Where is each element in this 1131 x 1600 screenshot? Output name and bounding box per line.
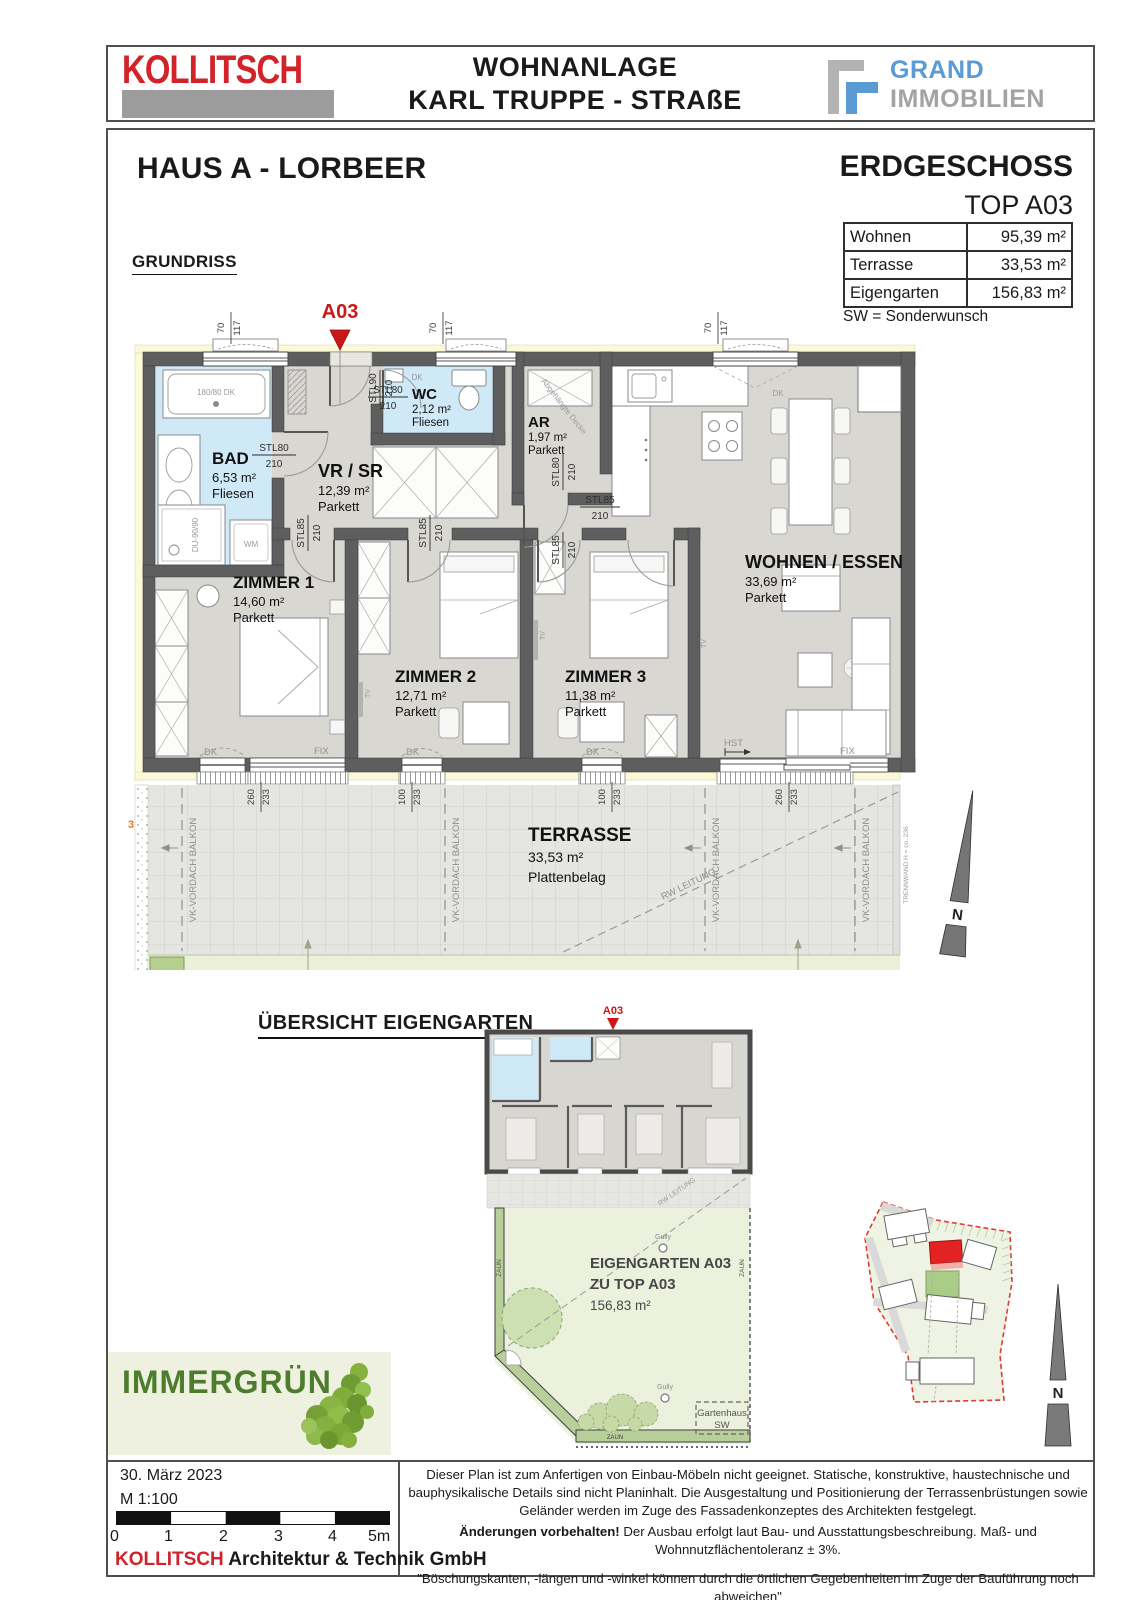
footer-divider: [106, 1460, 1095, 1462]
scale-tick: 5m: [368, 1528, 390, 1546]
bathtub-label: 180/80 DK: [197, 388, 235, 397]
room-floor: Parkett: [395, 704, 437, 719]
immergruen-badge: IMMERGRÜN: [108, 1352, 391, 1455]
dim: 233: [412, 789, 423, 805]
tv-label: TV: [540, 631, 547, 640]
room-name: ZIMMER 1: [233, 573, 314, 592]
fix-label: FIX: [314, 746, 329, 757]
door-size: 210: [380, 401, 397, 412]
highlighted-unit: [929, 1240, 962, 1264]
dim: 117: [232, 320, 243, 335]
project-title-line1: WOHNANLAGE: [340, 51, 810, 84]
door-size: STL80: [551, 457, 562, 487]
scale-tick: 3: [274, 1528, 283, 1546]
project-title-line2: KARL TRUPPE - STRAßE: [340, 84, 810, 117]
lawn-strip: [148, 955, 900, 970]
north-label: N: [951, 906, 964, 924]
scale-tick: 0: [110, 1528, 119, 1546]
tv-mark: [534, 620, 538, 660]
zaun-label: ZAUN: [496, 1259, 503, 1277]
gravel-strip: [135, 785, 148, 970]
room-floor: Parkett: [745, 590, 787, 605]
room-floor: Plattenbelag: [528, 869, 606, 885]
dk-label: DK: [411, 373, 423, 382]
door-size: STL85: [418, 518, 429, 548]
mini-unit-marker-arrow-icon: [607, 1018, 619, 1030]
gully-label: Gully: [655, 1234, 671, 1241]
garden-area: 156,83 m²: [590, 1298, 651, 1313]
hst-label: HST: [724, 738, 743, 749]
grand-icon-blue-shape: [846, 82, 878, 114]
grand-immobilien-icon: [826, 58, 882, 116]
gartenhaus-label2: SW: [714, 1420, 729, 1431]
garden-name-line2: ZU TOP A03: [590, 1276, 676, 1293]
scale-bar: [116, 1511, 390, 1525]
gartenhaus-label1: Gartenhaus: [697, 1408, 747, 1419]
grand-wordmark: GRAND IMMOBILIEN: [890, 56, 1045, 114]
plan-sheet: KOLLITSCH WOHNANLAGE KARL TRUPPE - STRAß…: [0, 0, 1131, 1600]
terrace: VK-VORDACH BALKON VK-VORDACH BALKON VK-V…: [128, 785, 910, 970]
dim: 117: [444, 320, 455, 335]
dim: 70: [428, 323, 439, 334]
tv-mark: [359, 682, 363, 717]
scale-tick: 4: [328, 1528, 337, 1546]
fix-label: FIX: [840, 746, 855, 757]
door-size: STL85: [585, 495, 615, 506]
zaun-label: ZAUN: [607, 1435, 623, 1441]
trennwand-label: TRENNWAND H = co. 236: [903, 826, 910, 904]
dim: 260: [246, 789, 257, 805]
room-name: ZIMMER 3: [565, 667, 646, 686]
entrance-opening: [330, 352, 372, 366]
scale-tick: 2: [219, 1528, 228, 1546]
eigengarten: RW LEITUNG Gully Gully EIGENGARTEN A03 Z…: [495, 1177, 750, 1447]
disclaimer: Dieser Plan ist zum Anfertigen von Einba…: [408, 1466, 1088, 1600]
door-size: 210: [567, 463, 578, 480]
gully-icon: [659, 1244, 667, 1252]
plan-date: 30. März 2023: [120, 1467, 222, 1485]
room-name: ZIMMER 2: [395, 667, 476, 686]
tv-label: TV: [365, 689, 372, 698]
vk-vordach-label: VK-VORDACH BALKON: [861, 818, 872, 923]
dim: 233: [789, 789, 800, 805]
grundriss-heading: GRUNDRISS: [132, 252, 237, 275]
table-row: Terrasse 33,53 m²: [844, 251, 1072, 279]
mini-unit-marker-label: A03: [603, 1005, 623, 1017]
door-size: 210: [567, 541, 578, 558]
dim: 70: [703, 323, 714, 334]
dk-label: DK: [406, 747, 420, 758]
green-bed: [150, 957, 184, 970]
floorplan: VK-VORDACH BALKON VK-VORDACH BALKON VK-V…: [118, 300, 1098, 970]
site-plan: [838, 1150, 1023, 1440]
room-area: 12,39 m²: [318, 483, 370, 498]
dk-label: DK: [772, 389, 784, 398]
zaun-label: ZAUN: [739, 1259, 746, 1277]
dim: 117: [719, 320, 730, 335]
kollitsch-logo-bar: [122, 90, 334, 118]
room-floor: Parkett: [318, 499, 360, 514]
room-area: 2,12 m²: [412, 404, 451, 416]
north-label: N: [1053, 1385, 1064, 1402]
highlighted-garden: [926, 1271, 959, 1297]
shower-label: DU-90/90: [191, 517, 200, 552]
area-label: Terrasse: [844, 251, 967, 279]
door-size: 210: [434, 524, 445, 541]
room-name: WOHNEN / ESSEN: [745, 552, 903, 572]
room-area: 33,53 m²: [528, 849, 584, 865]
disclaimer-bold: Änderungen vorbehalten!: [459, 1524, 619, 1539]
door-size: 210: [266, 459, 283, 470]
dim: 260: [774, 789, 785, 805]
room-name: WC: [412, 386, 437, 403]
washing-machine-label: WM: [244, 540, 259, 549]
house-title: HAUS A - LORBEER: [137, 152, 426, 186]
dim: 70: [216, 323, 227, 334]
unit-title: TOP A03: [964, 190, 1073, 221]
dk-label: DK: [204, 747, 218, 758]
unit-marker-label: A03: [322, 301, 359, 323]
dk-label: DK: [586, 747, 600, 758]
room-name: VR / SR: [318, 461, 383, 481]
north-arrow-icon: N: [940, 789, 986, 957]
room-floor: Parkett: [528, 445, 565, 457]
mini-floorplan: A03: [487, 1005, 750, 1175]
north-arrow-icon: N: [1035, 1278, 1081, 1453]
trennwand-strip: [893, 785, 900, 955]
side-number: 3: [128, 819, 134, 831]
company-brand: KOLLITSCH: [115, 1549, 224, 1570]
grand-immobilien-logo: GRAND IMMOBILIEN: [826, 56, 1086, 116]
gully-label: Gully: [657, 1384, 673, 1391]
disclaimer-paragraph-1: Dieser Plan ist zum Anfertigen von Einba…: [408, 1466, 1088, 1520]
entry-shelf: [288, 370, 306, 414]
area-value: 33,53 m²: [967, 251, 1072, 279]
door-size: STL80: [259, 443, 289, 454]
door-size: STL80: [373, 385, 403, 396]
table-row: Wohnen 95,39 m²: [844, 223, 1072, 251]
area-table: Wohnen 95,39 m² Terrasse 33,53 m² Eigeng…: [843, 222, 1073, 308]
grand-word-bottom: IMMOBILIEN: [890, 85, 1045, 114]
door-size: STL85: [296, 518, 307, 548]
door-size: STL85: [551, 535, 562, 565]
room-floor: Parkett: [565, 704, 607, 719]
stove: [702, 412, 742, 460]
vk-vordach-label: VK-VORDACH BALKON: [451, 818, 462, 923]
room-name: BAD: [212, 449, 249, 468]
dim: 100: [397, 789, 408, 805]
tree: [502, 1288, 562, 1348]
disclaimer-rest: Der Ausbau erfolgt laut Bau- und Ausstat…: [620, 1524, 1037, 1557]
room-name: AR: [528, 414, 550, 431]
room-area: 12,71 m²: [395, 688, 447, 703]
room-floor: Parkett: [233, 610, 275, 625]
door-size: 210: [312, 524, 323, 541]
area-value: 95,39 m²: [967, 223, 1072, 251]
room-floor: Fliesen: [212, 486, 254, 501]
plan-scale: M 1:100: [120, 1491, 178, 1509]
room-area: 1,97 m²: [528, 432, 567, 444]
grand-word-top: GRAND: [890, 56, 1045, 85]
scale-tick: 1: [164, 1528, 173, 1546]
door-size: 210: [592, 511, 609, 522]
room-area: 14,60 m²: [233, 594, 285, 609]
vk-vordach-label: VK-VORDACH BALKON: [188, 818, 199, 923]
garden-overview: A03 RW LEITUNG Gully: [450, 1000, 870, 1470]
room-name: TERRASSE: [528, 825, 631, 846]
room-area: 6,53 m²: [212, 470, 257, 485]
room-area: 33,69 m²: [745, 574, 797, 589]
disclaimer-paragraph-2: Änderungen vorbehalten! Der Ausbau erfol…: [408, 1523, 1088, 1559]
tv-label: TV: [701, 639, 708, 648]
garden-name-line1: EIGENGARTEN A03: [590, 1255, 731, 1272]
room-area: 11,38 m²: [565, 688, 616, 703]
wall-niche: [858, 366, 901, 412]
area-label: Wohnen: [844, 223, 967, 251]
disclaimer-paragraph-3: "Böschungskanten, -längen und -winkel kö…: [408, 1570, 1088, 1600]
project-title: WOHNANLAGE KARL TRUPPE - STRAßE: [340, 51, 810, 117]
moss-thumbs-up-icon: [279, 1352, 389, 1455]
room-floor: Fliesen: [412, 417, 449, 429]
dim: 100: [597, 789, 608, 805]
gully-icon: [661, 1394, 669, 1402]
dining-set: [771, 399, 850, 534]
dim: 233: [261, 789, 272, 805]
dim: 233: [612, 789, 623, 805]
floor-title: ERDGESCHOSS: [840, 150, 1073, 184]
kollitsch-logo: KOLLITSCH: [122, 48, 302, 93]
